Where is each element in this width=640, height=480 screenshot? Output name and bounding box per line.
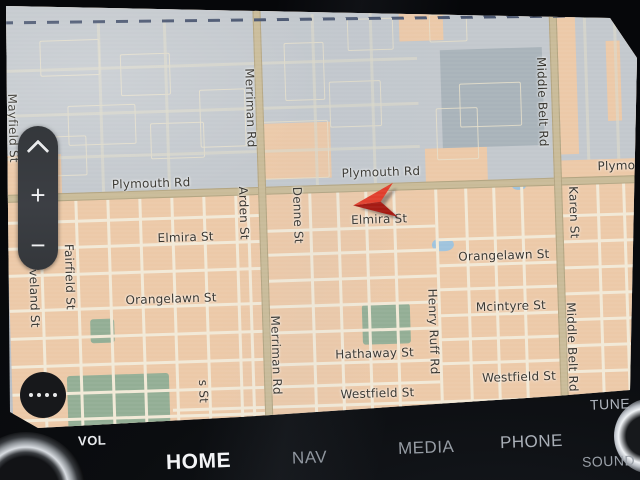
street-label: Westfield St <box>340 385 414 401</box>
building-outline <box>199 88 247 147</box>
nav-button[interactable]: NAV <box>292 447 328 468</box>
zoom-in-button[interactable]: + <box>18 170 58 220</box>
minor-road <box>261 274 437 282</box>
pan-up-button[interactable] <box>18 126 58 170</box>
map-zoom-control: + − <box>18 126 58 270</box>
vehicle-position-arrow <box>344 179 403 230</box>
street-label: Westfield St <box>482 369 556 385</box>
minor-road <box>11 330 263 340</box>
minor-road <box>263 326 439 334</box>
street-label: Merriman Rd <box>242 68 258 148</box>
nav-map-screen[interactable]: Plymouth RdPlymouth RdPlymouth RdElmira … <box>0 0 640 480</box>
four-dots-icon <box>29 393 33 397</box>
volume-knob[interactable] <box>0 432 86 480</box>
sound-label: SOUND <box>582 452 636 470</box>
street-label: Middle Belt Rd <box>564 302 581 392</box>
street-label: Plymouth Rd <box>341 164 420 180</box>
street-label: Denne St <box>290 187 306 244</box>
street-label: Mcintyre St <box>476 298 546 314</box>
minor-road <box>260 248 436 256</box>
map-canvas[interactable]: Plymouth RdPlymouth RdPlymouth RdElmira … <box>0 0 640 460</box>
street-label: Arden St <box>236 186 252 240</box>
tune-label: TUNE <box>590 395 631 412</box>
street-label: Henry Ruff Rd <box>425 288 442 374</box>
chevron-up-icon <box>27 140 50 163</box>
vol-label: VOL <box>78 433 107 449</box>
street-label: Middle Belt Rd <box>534 57 551 147</box>
home-button[interactable]: HOME <box>166 449 232 475</box>
street-label: Plymouth Rd <box>597 157 640 173</box>
building-outline <box>283 42 325 101</box>
street-label: Merriman Rd <box>268 315 284 395</box>
street-label: Karen St <box>566 186 582 239</box>
phone-button[interactable]: PHONE <box>500 431 564 453</box>
building-outline <box>39 39 100 77</box>
street-label: Elmira St <box>157 229 214 245</box>
street-label: Fairfield St <box>62 244 78 310</box>
street-label: Hathaway St <box>335 345 414 361</box>
street-label: Orangelawn St <box>458 247 550 264</box>
media-button[interactable]: MEDIA <box>398 437 455 459</box>
street-label: Plymouth Rd <box>112 175 191 191</box>
street-label: Orangelawn St <box>125 290 217 307</box>
minor-road <box>259 224 435 232</box>
building-outline <box>436 107 480 160</box>
minor-road <box>11 358 263 368</box>
infotainment-unit: Plymouth RdPlymouth RdPlymouth RdElmira … <box>0 0 640 480</box>
street-label: s St <box>196 380 211 404</box>
minor-road <box>262 300 438 308</box>
more-options-button[interactable] <box>20 372 66 418</box>
zoom-out-button[interactable]: − <box>18 220 58 270</box>
